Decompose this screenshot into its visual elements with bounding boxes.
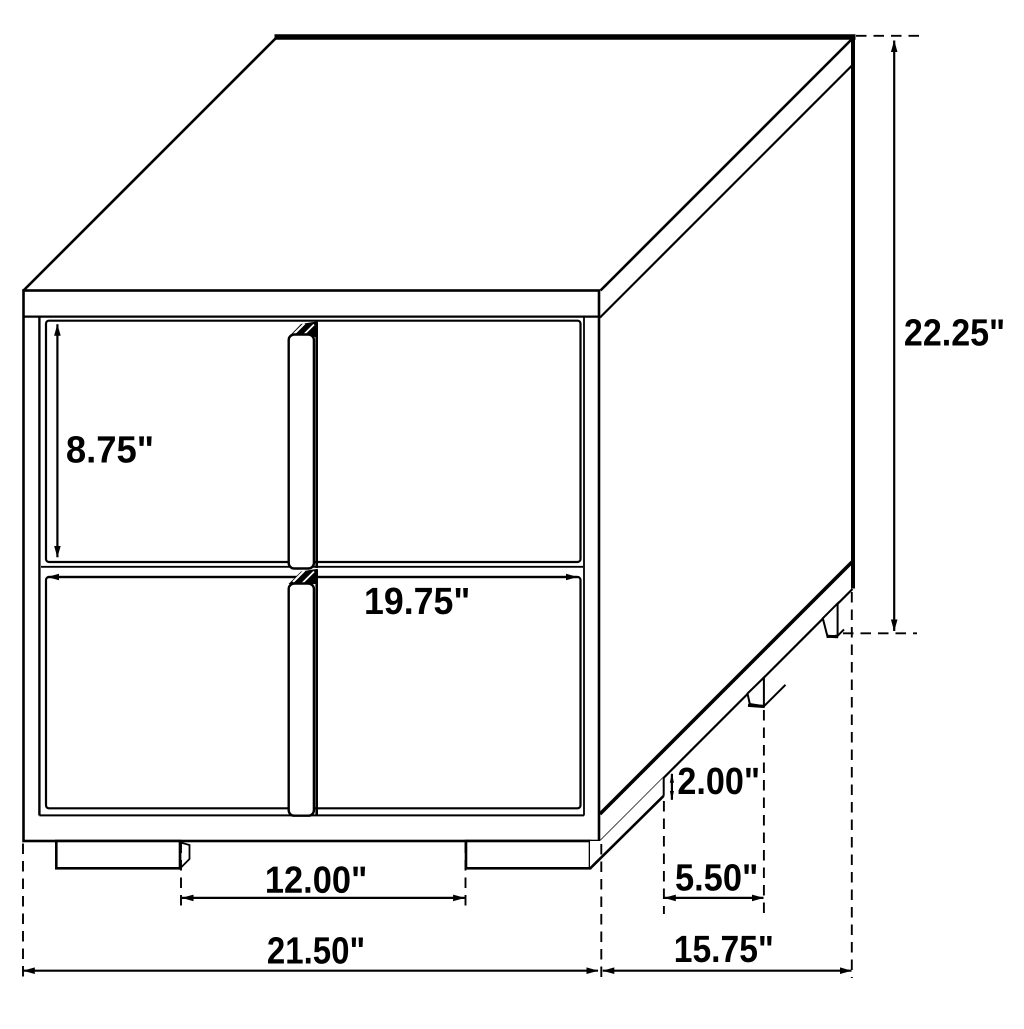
svg-text:8.75": 8.75" bbox=[66, 428, 154, 471]
svg-text:15.75": 15.75" bbox=[674, 928, 774, 970]
svg-text:21.50": 21.50" bbox=[267, 929, 365, 972]
svg-text:2.00": 2.00" bbox=[677, 759, 760, 802]
svg-text:22.25": 22.25" bbox=[904, 311, 1005, 354]
svg-text:5.50": 5.50" bbox=[675, 856, 758, 899]
svg-text:19.75": 19.75" bbox=[364, 580, 470, 622]
svg-text:12.00": 12.00" bbox=[265, 858, 367, 901]
